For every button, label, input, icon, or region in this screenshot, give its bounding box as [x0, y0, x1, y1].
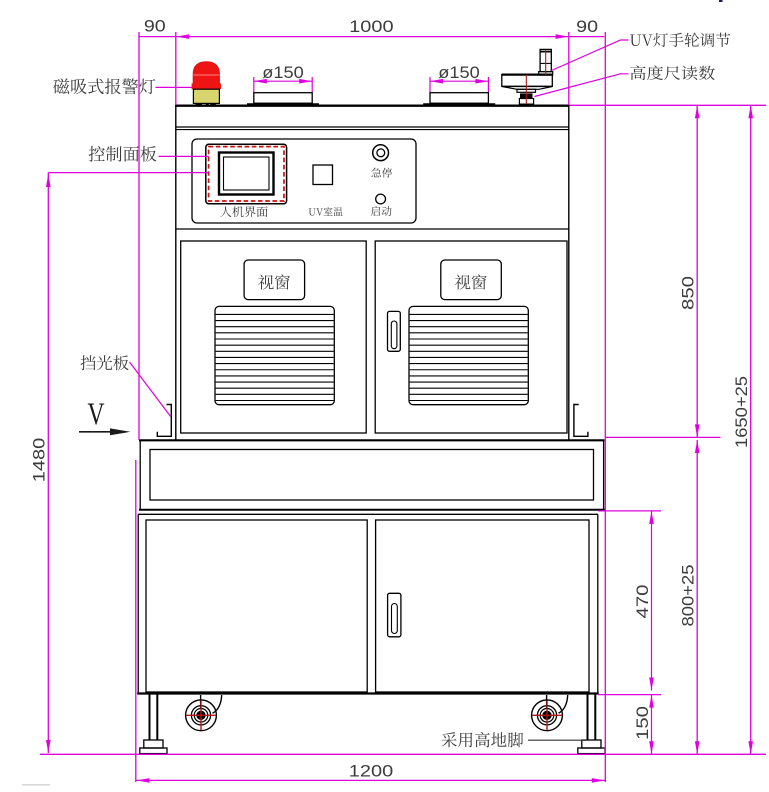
svg-text:1200: 1200: [349, 762, 393, 781]
svg-text:850: 850: [678, 276, 697, 310]
svg-text:1480: 1480: [30, 438, 49, 482]
svg-text:1650+25: 1650+25: [732, 376, 751, 448]
svg-text:90: 90: [144, 17, 166, 36]
svg-text:1000: 1000: [349, 17, 393, 36]
svg-text:V: V: [88, 396, 105, 432]
svg-text:ø150: ø150: [438, 63, 480, 82]
svg-text:ø150: ø150: [262, 63, 304, 82]
svg-text:800+25: 800+25: [678, 565, 697, 627]
svg-text:90: 90: [576, 17, 598, 36]
svg-text:150: 150: [633, 706, 652, 740]
svg-text:470: 470: [633, 585, 652, 619]
